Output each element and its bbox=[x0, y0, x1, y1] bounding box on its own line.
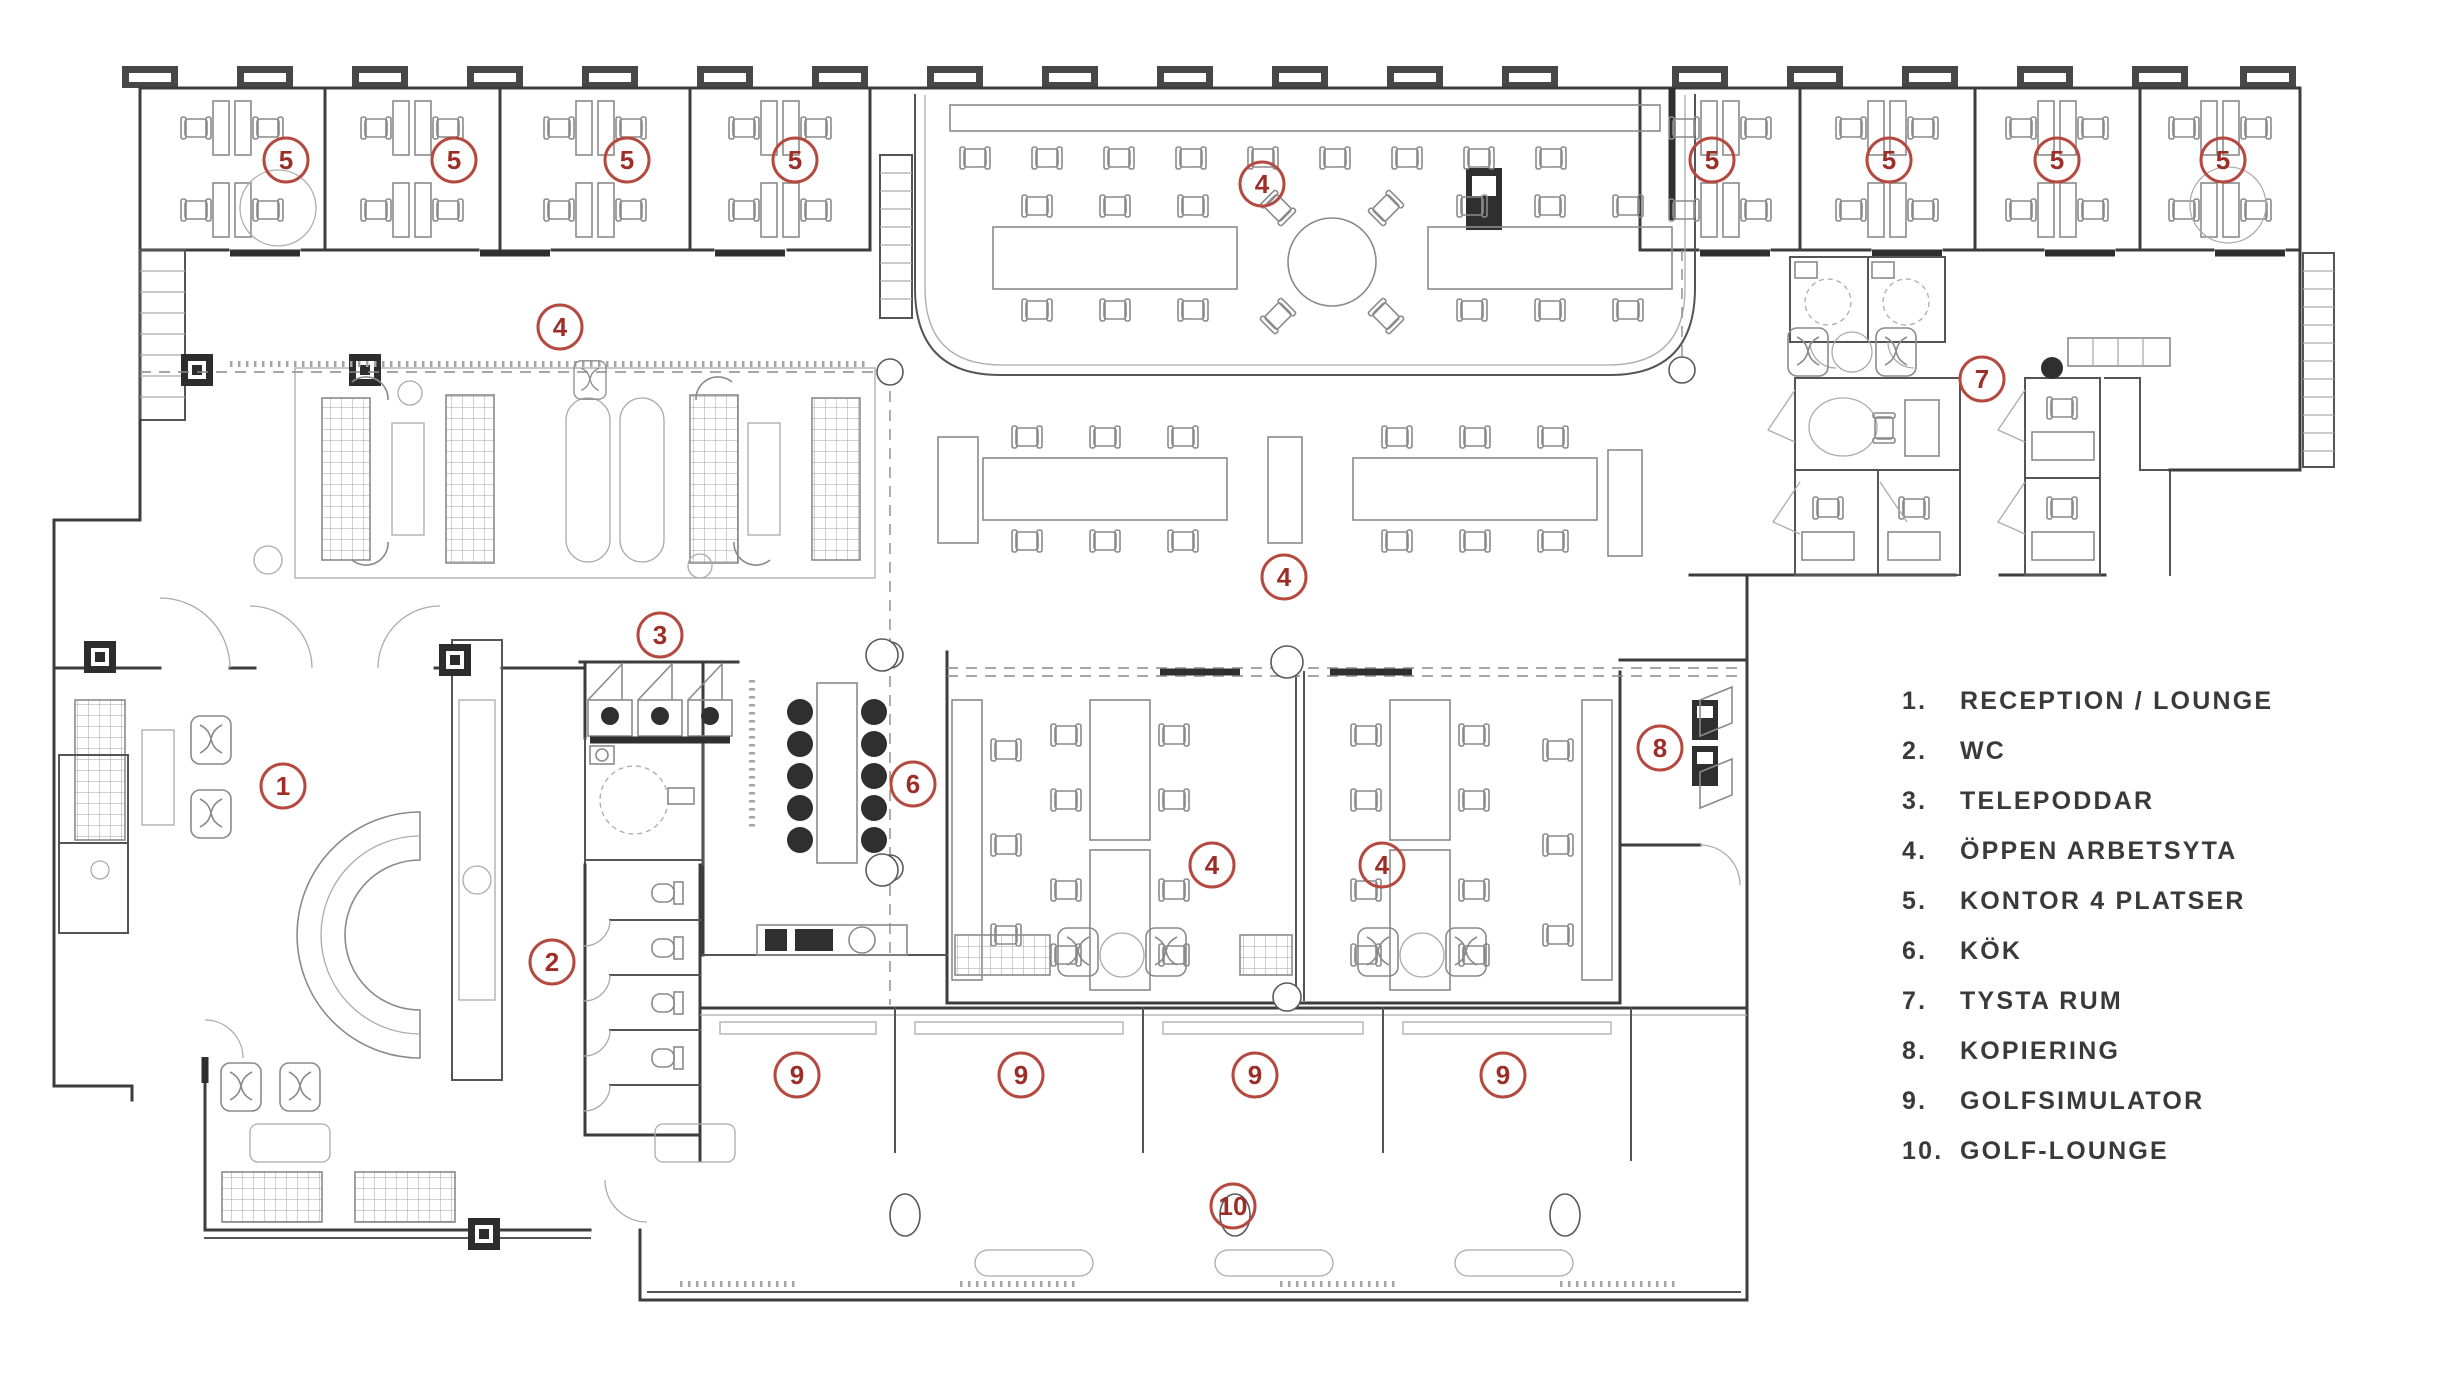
svg-text:4: 4 bbox=[1255, 169, 1270, 199]
svg-text:9: 9 bbox=[1248, 1060, 1262, 1090]
legend-item-number: 7. bbox=[1902, 988, 1960, 1015]
legend-item-label: ÖPPEN ARBETSYTA bbox=[1960, 838, 2237, 865]
room-marker: 5 bbox=[264, 138, 308, 182]
room-marker: 5 bbox=[432, 138, 476, 182]
svg-text:4: 4 bbox=[1277, 562, 1292, 592]
room-marker: 7 bbox=[1960, 357, 2004, 401]
legend-item-label: TELEPODDAR bbox=[1960, 788, 2154, 815]
room-marker: 4 bbox=[538, 305, 582, 349]
room-marker: 9 bbox=[775, 1053, 819, 1097]
legend-item: 9.GOLFSIMULATOR bbox=[1902, 1088, 2372, 1115]
svg-text:5: 5 bbox=[788, 145, 802, 175]
legend-item-number: 10. bbox=[1902, 1138, 1960, 1165]
legend-item: 2.WC bbox=[1902, 738, 2372, 765]
room-marker: 9 bbox=[1481, 1053, 1525, 1097]
legend-item-number: 1. bbox=[1902, 688, 1960, 715]
legend-item-number: 2. bbox=[1902, 738, 1960, 765]
legend-item: 10.GOLF-LOUNGE bbox=[1902, 1138, 2372, 1165]
legend-item-label: GOLFSIMULATOR bbox=[1960, 1088, 2204, 1115]
legend: 1.RECEPTION / LOUNGE2.WC3.TELEPODDAR4.ÖP… bbox=[1902, 688, 2372, 1188]
svg-text:5: 5 bbox=[2050, 145, 2064, 175]
room-marker: 9 bbox=[999, 1053, 1043, 1097]
window-row bbox=[122, 66, 2296, 88]
legend-item-label: WC bbox=[1960, 738, 2006, 765]
svg-text:8: 8 bbox=[1653, 733, 1667, 763]
room-marker: 3 bbox=[638, 613, 682, 657]
legend-item-number: 9. bbox=[1902, 1088, 1960, 1115]
svg-text:7: 7 bbox=[1975, 364, 1989, 394]
legend-item-number: 5. bbox=[1902, 888, 1960, 915]
svg-text:5: 5 bbox=[279, 145, 293, 175]
svg-text:5: 5 bbox=[1705, 145, 1719, 175]
svg-text:1: 1 bbox=[276, 771, 290, 801]
room-marker: 8 bbox=[1638, 726, 1682, 770]
svg-text:3: 3 bbox=[653, 620, 667, 650]
svg-text:5: 5 bbox=[1882, 145, 1896, 175]
svg-text:4: 4 bbox=[553, 312, 568, 342]
kitchen-stools bbox=[787, 699, 887, 853]
legend-item: 6.KÖK bbox=[1902, 938, 2372, 965]
svg-text:10: 10 bbox=[1219, 1191, 1248, 1221]
room-marker: 4 bbox=[1360, 843, 1404, 887]
svg-text:9: 9 bbox=[790, 1060, 804, 1090]
legend-item: 7.TYSTA RUM bbox=[1902, 988, 2372, 1015]
room-marker: 4 bbox=[1190, 843, 1234, 887]
svg-text:9: 9 bbox=[1496, 1060, 1510, 1090]
structural-columns bbox=[84, 354, 500, 1250]
legend-item: 8.KOPIERING bbox=[1902, 1038, 2372, 1065]
legend-item-number: 3. bbox=[1902, 788, 1960, 815]
room-marker: 5 bbox=[1867, 138, 1911, 182]
room-marker: 2 bbox=[530, 940, 574, 984]
room-marker: 9 bbox=[1233, 1053, 1277, 1097]
legend-item-label: KONTOR 4 PLATSER bbox=[1960, 888, 2246, 915]
legend-item: 4.ÖPPEN ARBETSYTA bbox=[1902, 838, 2372, 865]
legend-item-number: 6. bbox=[1902, 938, 1960, 965]
floor-plan-page: 1234444455555555678999910 1.RECEPTION / … bbox=[0, 0, 2440, 1376]
svg-text:4: 4 bbox=[1205, 850, 1220, 880]
legend-item-label: KOPIERING bbox=[1960, 1038, 2120, 1065]
room-marker: 5 bbox=[605, 138, 649, 182]
svg-text:2: 2 bbox=[545, 947, 559, 977]
svg-text:4: 4 bbox=[1375, 850, 1390, 880]
room-marker: 4 bbox=[1262, 555, 1306, 599]
room-marker: 5 bbox=[2201, 138, 2245, 182]
svg-text:5: 5 bbox=[2216, 145, 2230, 175]
svg-text:5: 5 bbox=[447, 145, 461, 175]
phone-pods bbox=[588, 664, 732, 740]
svg-text:9: 9 bbox=[1014, 1060, 1028, 1090]
room-marker: 5 bbox=[1690, 138, 1734, 182]
legend-item-number: 8. bbox=[1902, 1038, 1960, 1065]
svg-text:5: 5 bbox=[620, 145, 634, 175]
legend-item-label: RECEPTION / LOUNGE bbox=[1960, 688, 2273, 715]
room-marker: 5 bbox=[773, 138, 817, 182]
legend-item: 5.KONTOR 4 PLATSER bbox=[1902, 888, 2372, 915]
room-marker: 1 bbox=[261, 764, 305, 808]
legend-item-label: GOLF-LOUNGE bbox=[1960, 1138, 2169, 1165]
svg-text:6: 6 bbox=[906, 769, 920, 799]
legend-item-label: KÖK bbox=[1960, 938, 2022, 965]
legend-item-number: 4. bbox=[1902, 838, 1960, 865]
room-marker: 5 bbox=[2035, 138, 2079, 182]
legend-item-label: TYSTA RUM bbox=[1960, 988, 2123, 1015]
legend-item: 1.RECEPTION / LOUNGE bbox=[1902, 688, 2372, 715]
room-marker: 6 bbox=[891, 762, 935, 806]
legend-item: 3.TELEPODDAR bbox=[1902, 788, 2372, 815]
room-marker: 4 bbox=[1240, 162, 1284, 206]
